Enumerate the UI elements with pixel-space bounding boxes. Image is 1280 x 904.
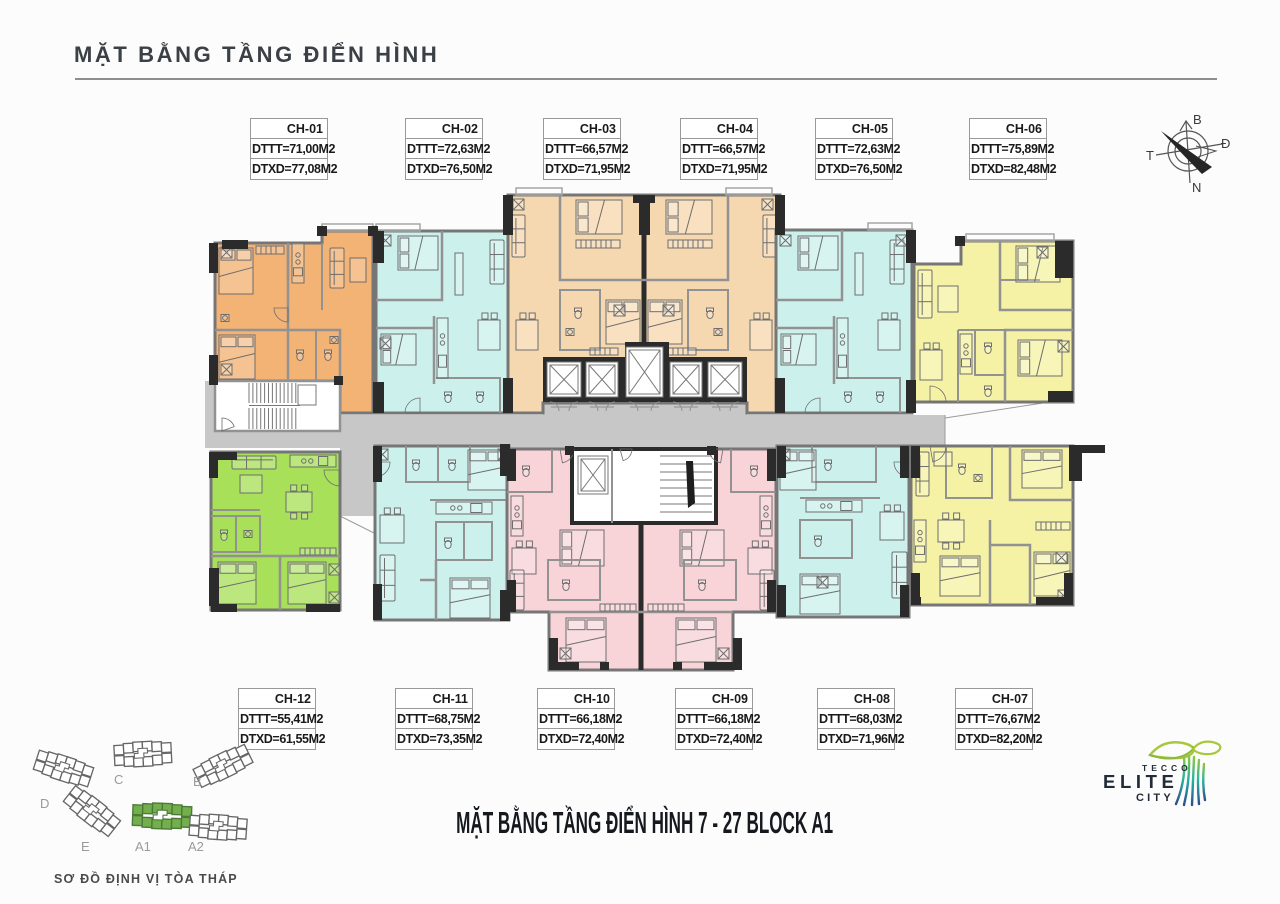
svg-text:B: B bbox=[193, 774, 202, 789]
svg-text:CITY: CITY bbox=[1136, 792, 1174, 804]
svg-text:Đ: Đ bbox=[1221, 136, 1230, 151]
svg-text:T: T bbox=[1146, 148, 1154, 163]
svg-text:C: C bbox=[114, 772, 123, 787]
svg-text:SƠ ĐỒ ĐỊNH VỊ TÒA THÁP: SƠ ĐỒ ĐỊNH VỊ TÒA THÁP bbox=[54, 871, 238, 886]
svg-text:D: D bbox=[40, 796, 49, 811]
svg-text:N: N bbox=[1192, 180, 1201, 195]
svg-text:ELITE: ELITE bbox=[1103, 771, 1178, 792]
svg-text:B: B bbox=[1193, 112, 1202, 127]
svg-text:A2: A2 bbox=[188, 839, 204, 854]
svg-text:E: E bbox=[81, 839, 90, 854]
svg-text:A1: A1 bbox=[135, 839, 151, 854]
